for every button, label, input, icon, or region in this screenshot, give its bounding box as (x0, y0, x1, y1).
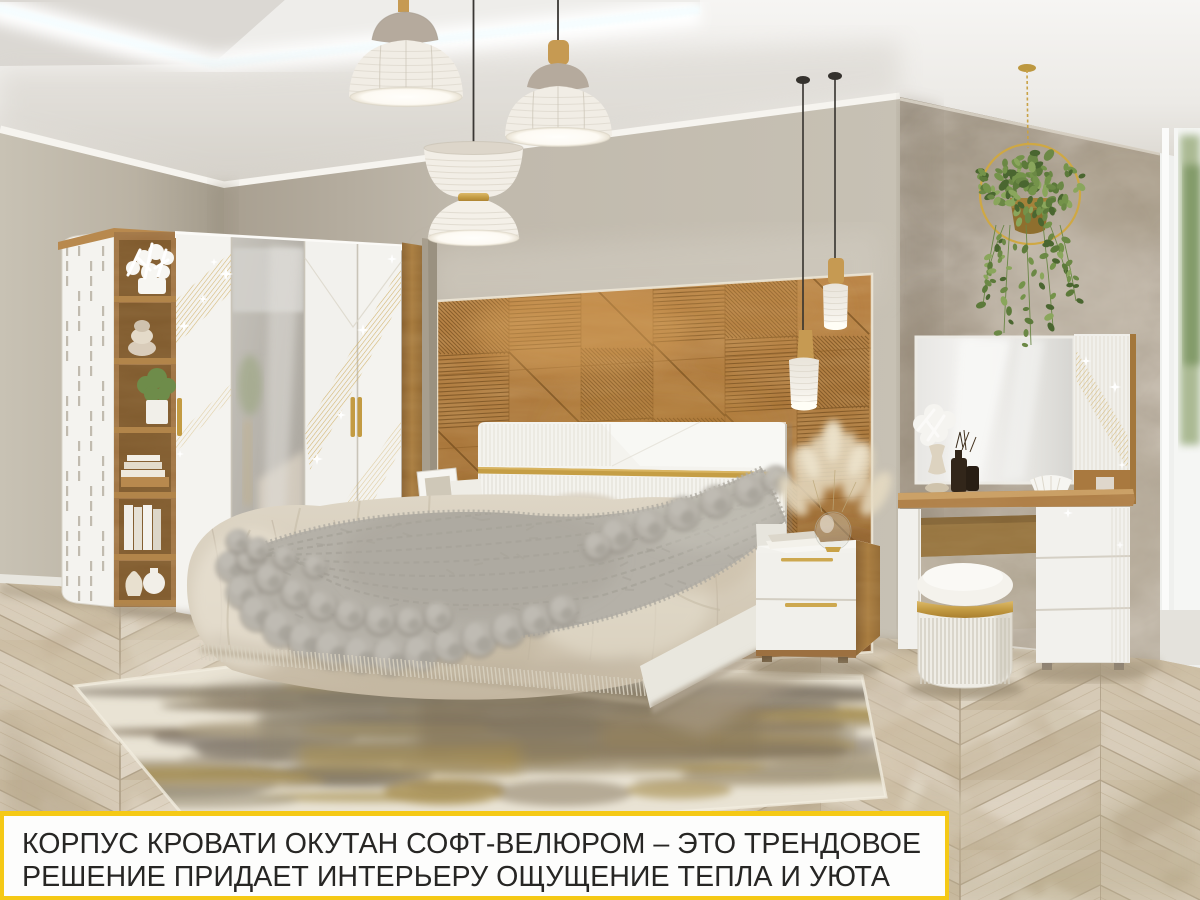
svg-text:КОРПУС КРОВАТИ ОКУТАН СОФТ-ВЕЛ: КОРПУС КРОВАТИ ОКУТАН СОФТ-ВЕЛЮРОМ – ЭТО… (22, 828, 921, 860)
svg-text:РЕШЕНИЕ ПРИДАЕТ ИНТЕРЬЕРУ ОЩУЩ: РЕШЕНИЕ ПРИДАЕТ ИНТЕРЬЕРУ ОЩУЩЕНИЕ ТЕПЛА… (22, 861, 891, 893)
